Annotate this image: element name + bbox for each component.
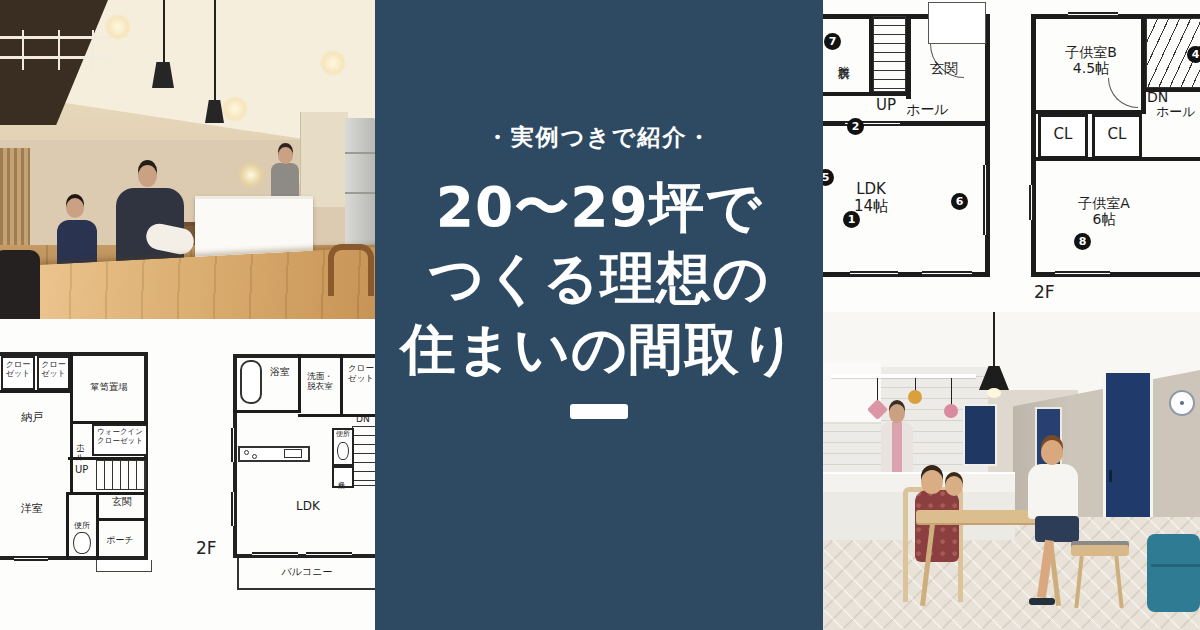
photo-marker: 1 bbox=[843, 211, 860, 228]
room-label-tansu: 箪笥置場 bbox=[76, 382, 142, 393]
loft-railing-post bbox=[58, 30, 60, 70]
title-line-3: 住まいの間取り bbox=[375, 314, 823, 385]
title-line-1: 20〜29坪で bbox=[375, 172, 823, 243]
room-label-bath: 浴室 bbox=[264, 366, 296, 378]
girl-younger-head bbox=[945, 476, 963, 496]
mother-head bbox=[889, 404, 905, 423]
father-shorts bbox=[1035, 516, 1079, 542]
title-line-2: つくる理想の bbox=[375, 243, 823, 314]
window bbox=[983, 165, 988, 235]
wall bbox=[1031, 157, 1200, 161]
room-label-entrance: 玄関 bbox=[102, 496, 142, 508]
room-label-kids-b: 子供室B 4.5帖 bbox=[1045, 44, 1137, 76]
room-label-western: 洋室 bbox=[12, 503, 52, 516]
toilet-fixture bbox=[337, 442, 349, 460]
sink bbox=[284, 449, 302, 458]
room-label-toilet: 便所 bbox=[333, 430, 353, 438]
pendant-cord bbox=[214, 0, 216, 102]
downlight bbox=[238, 162, 264, 188]
photo-marker: 4 bbox=[1187, 46, 1200, 63]
loft-railing-bar bbox=[0, 56, 106, 59]
floor-label-2f: 2F bbox=[196, 539, 217, 559]
downlight bbox=[222, 96, 248, 122]
burner bbox=[252, 454, 257, 459]
wall bbox=[340, 354, 343, 414]
porch-step bbox=[96, 560, 152, 572]
window bbox=[306, 552, 352, 557]
pendant-bulb-glow bbox=[987, 388, 1001, 398]
stairs-label-up: UP bbox=[75, 464, 88, 476]
father-sandal bbox=[1029, 598, 1055, 605]
room-label-hall: ホール bbox=[906, 101, 949, 117]
wall bbox=[233, 410, 301, 413]
loft-railing-post bbox=[22, 30, 24, 70]
girl-older-head bbox=[921, 470, 943, 494]
burner bbox=[244, 450, 249, 455]
closet-label: クロー ゼット bbox=[39, 360, 68, 378]
photo-marker: 7 bbox=[824, 33, 841, 50]
downlight bbox=[320, 50, 346, 76]
door-handle bbox=[1109, 470, 1112, 482]
closet-label: CL bbox=[1046, 126, 1080, 143]
wall bbox=[812, 121, 990, 126]
father-head bbox=[138, 165, 157, 187]
fridge-handle-line bbox=[345, 152, 375, 154]
fridge-handle-line bbox=[345, 192, 375, 194]
tagline-text: ・実例つきで紹介・ bbox=[375, 122, 823, 153]
window bbox=[14, 556, 48, 561]
pendant-cord bbox=[163, 0, 165, 64]
wall bbox=[96, 518, 148, 521]
title-underline-dash bbox=[570, 404, 628, 419]
toilet-fixture bbox=[73, 532, 91, 554]
window bbox=[1055, 271, 1110, 276]
mother-figure bbox=[881, 422, 913, 474]
black-stool bbox=[0, 250, 40, 319]
photo-top-left-living bbox=[0, 0, 375, 319]
tall-cabinet bbox=[300, 112, 348, 207]
entrance-porch bbox=[928, 2, 986, 44]
wood-stool bbox=[1071, 545, 1129, 556]
refrigerator bbox=[345, 118, 375, 258]
track-light-bar bbox=[831, 374, 976, 378]
room-label-washroom: 脱衣所 bbox=[836, 20, 850, 94]
window bbox=[850, 271, 898, 276]
window bbox=[1068, 12, 1118, 17]
girl-older-body bbox=[915, 490, 959, 562]
room-label-toilet: 便所 bbox=[68, 521, 96, 530]
window bbox=[231, 492, 236, 526]
closet-label: クロー ゼット bbox=[3, 360, 33, 378]
toddler-head bbox=[66, 198, 84, 218]
window bbox=[231, 428, 236, 462]
loft-railing-post bbox=[92, 30, 94, 70]
photo-marker: 6 bbox=[951, 193, 968, 210]
photo-marker: 8 bbox=[1074, 233, 1091, 250]
photo-bottom-right-dining bbox=[823, 312, 1200, 630]
mini-pendant-cord bbox=[951, 378, 952, 406]
room-label-storage: 納戸 bbox=[12, 412, 52, 425]
kitchen-island bbox=[195, 196, 313, 260]
window bbox=[922, 271, 972, 276]
floor-label-2f: 2F bbox=[1034, 283, 1055, 303]
stairs-label-dn: DN bbox=[356, 414, 370, 424]
teal-sofa bbox=[1147, 534, 1200, 612]
stairs-up bbox=[873, 16, 906, 92]
closet-label: クロー ゼット bbox=[345, 364, 377, 384]
wall bbox=[1141, 14, 1146, 114]
sofa-cushion-line bbox=[1151, 564, 1200, 567]
mini-pendant-amber bbox=[908, 390, 922, 404]
page-title: 20〜29坪で つくる理想の 住まいの間取り bbox=[375, 172, 823, 385]
room-label-entrance: 玄関 bbox=[930, 60, 958, 76]
closet-label: CL bbox=[1100, 126, 1134, 143]
room-label-hall: ホール bbox=[75, 428, 85, 468]
wall bbox=[66, 492, 148, 495]
wall bbox=[70, 352, 73, 424]
pendant-cord bbox=[993, 312, 995, 370]
navy-door-far bbox=[963, 404, 997, 466]
bathtub bbox=[240, 360, 262, 404]
room-label-wic: ウォークイン クローゼット bbox=[94, 428, 146, 445]
clock-center-dot bbox=[1180, 401, 1184, 405]
downlight bbox=[105, 14, 131, 40]
room-label-washroom: 洗面・ 脱衣室 bbox=[300, 372, 340, 392]
hero-image: 脱衣所 UP ホール 玄関 LDK 14帖 7 2 5 1 6 子供室B 4.5… bbox=[0, 0, 1200, 630]
wall bbox=[96, 492, 99, 560]
father-body bbox=[1028, 464, 1078, 519]
mini-pendant-pink bbox=[944, 404, 958, 418]
room-label-balcony: バルコニー bbox=[262, 566, 352, 578]
wall bbox=[906, 14, 911, 99]
wood-chair bbox=[328, 244, 374, 296]
father-head bbox=[1041, 440, 1063, 465]
mother-head bbox=[278, 147, 293, 164]
room-label-hall: ホール bbox=[1156, 105, 1196, 120]
title-band: ・実例つきで紹介・ 20〜29坪で つくる理想の 住まいの間取り bbox=[375, 0, 823, 630]
room-label-kids-a: 子供室A 6帖 bbox=[1060, 195, 1148, 227]
stairs-up bbox=[96, 460, 146, 490]
window bbox=[1029, 185, 1034, 220]
photo-marker: 2 bbox=[847, 118, 864, 135]
room-label-porch: ポーチ bbox=[100, 535, 140, 545]
stairs-label-dn: DN bbox=[1147, 89, 1168, 105]
room-label-storage: 収納 bbox=[337, 468, 344, 486]
window bbox=[252, 552, 298, 557]
stairs-label-up: UP bbox=[876, 97, 896, 114]
room-label-ldk: LDK bbox=[288, 500, 328, 514]
loft-railing-bar bbox=[0, 36, 112, 39]
wall bbox=[298, 414, 383, 417]
wall bbox=[0, 390, 73, 393]
